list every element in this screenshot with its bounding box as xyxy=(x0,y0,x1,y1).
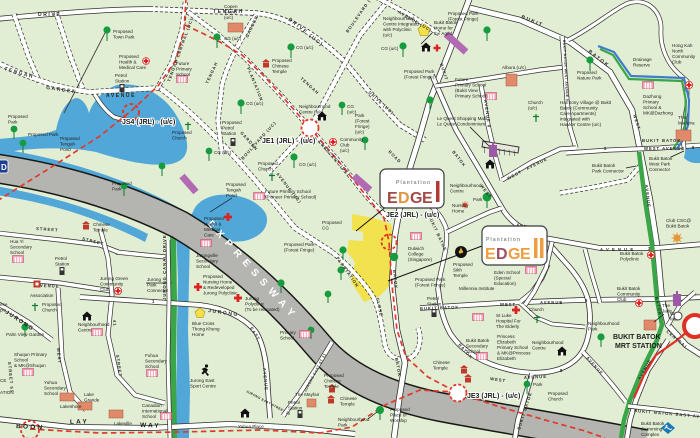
svg-text:Reserve: Reserve xyxy=(633,63,651,68)
svg-text:(u/c): (u/c) xyxy=(383,33,393,38)
svg-text:Centre: Centre xyxy=(532,346,546,351)
svg-text:Proposed: Proposed xyxy=(324,373,344,378)
svg-text:Yuhua Place: Yuhua Place xyxy=(238,424,264,429)
svg-text:D: D xyxy=(496,246,508,263)
svg-text:Church: Church xyxy=(528,100,543,105)
svg-text:Bukit Batok: Bukit Batok xyxy=(466,338,490,343)
svg-text:St Luke: St Luke xyxy=(496,313,512,318)
svg-text:School: School xyxy=(176,72,190,77)
svg-text:Proposed: Proposed xyxy=(8,114,28,119)
svg-text:Church: Church xyxy=(172,136,187,141)
svg-text:AVENUE: AVENUE xyxy=(106,93,136,99)
svg-text:Education): Education) xyxy=(494,281,516,286)
svg-text:5: 5 xyxy=(692,145,695,150)
svg-text:Secondary: Secondary xyxy=(10,245,33,250)
svg-text:Bukit Batok: Bukit Batok xyxy=(434,20,458,25)
svg-text:Town Park: Town Park xyxy=(113,35,135,40)
svg-text:Swimming: Swimming xyxy=(641,427,663,432)
svg-text:School: School xyxy=(280,336,294,341)
svg-text:Temple: Temple xyxy=(272,69,287,74)
svg-text:E: E xyxy=(387,190,398,207)
svg-text:Temple: Temple xyxy=(433,366,448,371)
svg-text:E: E xyxy=(485,246,496,263)
svg-text:Elizabeth: Elizabeth xyxy=(497,356,516,361)
svg-text:(Forest Fringe): (Forest Fringe) xyxy=(404,75,435,80)
svg-text:Station: Station xyxy=(427,302,442,307)
svg-text:CG (u/c): CG (u/c) xyxy=(214,150,232,155)
svg-text:Home for: Home for xyxy=(434,26,453,31)
svg-text:Lakeville: Lakeville xyxy=(114,421,132,426)
svg-text:Grand: Grand xyxy=(224,10,237,15)
svg-text:Church: Church xyxy=(548,397,563,402)
svg-text:Temple: Temple xyxy=(340,402,355,407)
svg-text:AVENUE: AVENUE xyxy=(540,300,563,305)
svg-text:(u/c): (u/c) xyxy=(355,130,365,135)
svg-text:Nature Park: Nature Park xyxy=(577,76,602,81)
svg-text:ese: ese xyxy=(0,302,8,307)
svg-text:Club CSC@: Club CSC@ xyxy=(666,218,691,223)
svg-text:Club: Club xyxy=(617,297,627,302)
svg-text:Park: Park xyxy=(473,197,483,202)
svg-text:Temple: Temple xyxy=(324,384,339,389)
svg-text:Secondary: Secondary xyxy=(196,259,219,264)
svg-text:JS4 (JRL) - (u/c): JS4 (JRL) - (u/c) xyxy=(122,119,175,126)
svg-text:CG (u/c): CG (u/c) xyxy=(224,36,242,41)
svg-text:Blue Cross: Blue Cross xyxy=(192,321,215,326)
svg-text:Park: Park xyxy=(533,382,543,387)
svg-text:MRT STATION: MRT STATION xyxy=(615,343,662,350)
svg-text:Eden School: Eden School xyxy=(494,270,520,275)
svg-text:Temple: Temple xyxy=(93,228,108,233)
svg-text:(Forest Fringe): (Forest Fringe) xyxy=(415,283,446,288)
svg-text:Batok (Community: Batok (Community xyxy=(560,106,598,111)
svg-text:The: The xyxy=(678,115,686,120)
svg-text:Lakeshore: Lakeshore xyxy=(60,404,82,409)
svg-text:DRIVE: DRIVE xyxy=(38,12,61,18)
svg-text:Harmony Village @ Bukit: Harmony Village @ Bukit xyxy=(560,100,612,105)
svg-text:Hawker Centre (u/c): Hawker Centre (u/c) xyxy=(560,122,602,127)
svg-text:Home: Home xyxy=(192,332,205,337)
svg-text:School: School xyxy=(10,250,24,255)
svg-text:Sport Centre: Sport Centre xyxy=(190,384,216,389)
svg-text:Proposed: Proposed xyxy=(42,302,62,307)
svg-text:Proposed Park: Proposed Park xyxy=(284,242,315,247)
svg-text:CG (u/c): CG (u/c) xyxy=(296,45,314,50)
svg-text:(Forest: (Forest xyxy=(355,119,370,124)
svg-text:CG: CG xyxy=(347,104,354,109)
svg-text:Future: Future xyxy=(176,61,190,66)
svg-text:Temple: Temple xyxy=(453,273,468,278)
svg-text:Secondary: Secondary xyxy=(466,344,489,349)
svg-text:CG: CG xyxy=(322,226,329,231)
svg-text:G: G xyxy=(508,246,520,263)
svg-text:Madeira: Madeira xyxy=(678,121,695,126)
svg-text:Connector: Connector xyxy=(147,288,169,293)
svg-text:School: School xyxy=(145,364,159,369)
svg-text:D: D xyxy=(398,190,410,207)
svg-text:CG (u/c): CG (u/c) xyxy=(299,162,317,167)
svg-text:E: E xyxy=(520,246,531,263)
svg-text:Jurongville: Jurongville xyxy=(196,253,218,258)
svg-text:Canadian: Canadian xyxy=(142,403,162,408)
svg-text:Jurong East: Jurong East xyxy=(190,378,215,383)
svg-text:Community: Community xyxy=(617,292,641,297)
svg-text:Medical Care: Medical Care xyxy=(119,65,147,70)
svg-text:Club: Club xyxy=(340,143,350,148)
svg-text:Proposed: Proposed xyxy=(204,216,224,221)
svg-text:CG (u/c): CG (u/c) xyxy=(246,101,264,106)
svg-text:Grande: Grande xyxy=(84,398,100,403)
svg-text:8: 8 xyxy=(560,368,563,373)
svg-text:JE1 (JRL) - (u/c): JE1 (JRL) - (u/c) xyxy=(262,138,315,145)
svg-text:Primary School): Primary School) xyxy=(455,94,488,99)
svg-text:The Elderly: The Elderly xyxy=(496,324,520,329)
svg-text:Proposed Park: Proposed Park xyxy=(404,69,435,74)
svg-text:Station: Station xyxy=(288,406,303,411)
svg-text:Neighbourhood: Neighbourhood xyxy=(299,104,331,109)
svg-text:Care: Care xyxy=(204,233,214,238)
svg-text:Hua Yi: Hua Yi xyxy=(10,239,24,244)
svg-text:Bukit Batok: Bukit Batok xyxy=(620,251,644,256)
svg-text:(u/c): (u/c) xyxy=(224,15,234,20)
svg-text:Nursing: Nursing xyxy=(452,203,468,208)
svg-text:School: School xyxy=(14,358,28,363)
svg-text:Proposed: Proposed xyxy=(226,182,246,187)
svg-text:Thong Kheng: Thong Kheng xyxy=(192,327,220,332)
svg-text:CG (u/c): CG (u/c) xyxy=(381,46,399,51)
svg-text:& MK@Princess: & MK@Princess xyxy=(497,351,531,356)
svg-text:Primary School: Primary School xyxy=(497,345,528,350)
svg-text:Future: Future xyxy=(455,77,469,82)
svg-text:Princess: Princess xyxy=(497,334,515,339)
svg-text:Proposed: Proposed xyxy=(112,181,132,186)
svg-text:Proposed Park: Proposed Park xyxy=(448,11,479,16)
svg-text:Primary: Primary xyxy=(176,67,193,72)
svg-text:Station: Station xyxy=(55,262,70,267)
svg-text:Neighbourhood: Neighbourhood xyxy=(588,321,620,326)
svg-text:Proposed: Proposed xyxy=(222,120,242,125)
svg-text:E: E xyxy=(422,190,433,207)
svg-text:Care Apartments): Care Apartments) xyxy=(560,111,596,116)
svg-text:Millennia Institute: Millennia Institute xyxy=(459,286,495,291)
svg-text:3: 3 xyxy=(648,246,651,251)
svg-text:Copen: Copen xyxy=(224,4,238,9)
svg-text:Primary: Primary xyxy=(643,100,660,105)
svg-text:School: School xyxy=(44,391,58,396)
svg-text:Petrol: Petrol xyxy=(427,296,439,301)
svg-text:Yuhua: Yuhua xyxy=(44,380,57,385)
svg-text:Le Quest Condominium: Le Quest Condominium xyxy=(437,122,485,127)
svg-text:(Forest Fringe): (Forest Fringe) xyxy=(284,248,315,253)
svg-text:Proposed: Proposed xyxy=(172,130,192,135)
svg-text:Club: Club xyxy=(672,60,682,65)
svg-text:Health &: Health & xyxy=(204,222,222,227)
svg-text:Tengah: Tengah xyxy=(60,142,76,147)
svg-text:Park: Park xyxy=(588,327,598,332)
svg-text:Medical: Medical xyxy=(204,227,220,232)
svg-text:(u/c): (u/c) xyxy=(528,106,538,111)
svg-text:Nursing Home: Nursing Home xyxy=(203,280,233,285)
svg-text:Polyclinic: Polyclinic xyxy=(620,257,640,262)
svg-text:International: International xyxy=(142,409,167,414)
svg-text:Proposed: Proposed xyxy=(577,70,597,75)
svg-text:Proposed: Proposed xyxy=(453,262,473,267)
svg-text:Bukit Batok: Bukit Batok xyxy=(592,163,616,168)
svg-text:Chinese: Chinese xyxy=(93,222,110,227)
svg-text:Neighbourhood: Neighbourhood xyxy=(532,340,564,345)
svg-text:Park Connector: Park Connector xyxy=(592,169,624,174)
svg-text:Jurong Polyclinic: Jurong Polyclinic xyxy=(203,291,238,296)
svg-text:Petrol: Petrol xyxy=(55,256,67,261)
svg-text:Tengah: Tengah xyxy=(226,188,242,193)
svg-text:BOON: BOON xyxy=(16,423,45,431)
svg-text:Hospital For: Hospital For xyxy=(496,319,521,324)
svg-text:CE: CE xyxy=(0,378,6,383)
svg-text:Proposed: Proposed xyxy=(390,407,410,412)
svg-text:(Special: (Special xyxy=(494,276,511,281)
svg-text:Secondary: Secondary xyxy=(145,359,168,364)
svg-text:Jurong: Jurong xyxy=(245,296,259,301)
svg-text:Proposed: Proposed xyxy=(322,220,342,225)
svg-text:Park: Park xyxy=(338,423,348,428)
svg-text:Fuhua: Fuhua xyxy=(145,353,158,358)
svg-text:6: 6 xyxy=(585,298,588,303)
svg-text:WAY: WAY xyxy=(140,422,161,430)
svg-text:Jurong: Jurong xyxy=(147,277,161,282)
svg-text:Primary School: Primary School xyxy=(455,83,486,88)
svg-text:Petrol: Petrol xyxy=(115,73,127,78)
svg-text:& MK@Shuqun: & MK@Shuqun xyxy=(14,363,46,368)
svg-text:JE2 (JRL) - (u/c): JE2 (JRL) - (u/c) xyxy=(386,212,439,219)
svg-text:JE3 (JRL) - (u/c): JE3 (JRL) - (u/c) xyxy=(467,393,520,400)
svg-text:Church: Church xyxy=(258,167,273,172)
svg-text:Park: Park xyxy=(147,283,157,288)
svg-text:Petrol: Petrol xyxy=(288,400,300,405)
svg-text:G: G xyxy=(410,190,422,207)
svg-text:Secondary: Secondary xyxy=(44,386,67,391)
svg-text:Park: Park xyxy=(355,113,365,118)
svg-text:Centre Integrated: Centre Integrated xyxy=(383,22,419,27)
svg-text:Fringe): Fringe) xyxy=(355,124,370,129)
svg-text:Proposed: Proposed xyxy=(548,391,568,396)
svg-text:Petrol: Petrol xyxy=(222,126,234,131)
svg-text:Chinese: Chinese xyxy=(324,379,341,384)
svg-text:MK@Dazhong: MK@Dazhong xyxy=(643,111,673,116)
svg-text:Jurong Green: Jurong Green xyxy=(100,276,129,281)
svg-text:Community: Community xyxy=(340,137,364,142)
svg-text:5: 5 xyxy=(604,146,607,151)
svg-text:Bukit Batok: Bukit Batok xyxy=(649,156,673,161)
svg-text:Palm View Garden: Palm View Garden xyxy=(6,332,45,337)
svg-text:Bukit Batok: Bukit Batok xyxy=(666,224,690,229)
svg-text:Sikh: Sikh xyxy=(453,268,462,273)
svg-text:Association: Association xyxy=(30,293,54,298)
svg-text:with Polyclinic: with Polyclinic xyxy=(383,27,412,32)
svg-text:Proposed Park: Proposed Park xyxy=(415,277,446,282)
svg-text:School: School xyxy=(466,349,480,354)
svg-text:Proposed: Proposed xyxy=(60,136,80,141)
svg-text:Chinese: Chinese xyxy=(433,360,450,365)
svg-text:Shuqun Primary: Shuqun Primary xyxy=(14,352,48,357)
svg-text:D: D xyxy=(1,163,7,172)
svg-text:Pond: Pond xyxy=(226,193,237,198)
svg-text:Dulwich: Dulwich xyxy=(408,246,425,251)
svg-text:Bukit Batok: Bukit Batok xyxy=(617,286,641,291)
svg-text:Neighbourhood: Neighbourhood xyxy=(383,16,415,21)
svg-text:Plantation: Plantation xyxy=(396,180,431,186)
svg-text:Future Primary School: Future Primary School xyxy=(265,189,311,194)
svg-text:& Redeveloped: & Redeveloped xyxy=(203,285,235,290)
svg-text:Bukit Batok: Bukit Batok xyxy=(641,421,665,426)
svg-text:Elizabeth: Elizabeth xyxy=(497,340,516,345)
svg-text:Community: Community xyxy=(672,54,696,59)
svg-text:Park: Park xyxy=(8,120,18,125)
svg-text:Station: Station xyxy=(222,131,237,136)
svg-text:West Park: West Park xyxy=(649,162,671,167)
svg-text:Chinese: Chinese xyxy=(272,64,289,69)
svg-text:LAY: LAY xyxy=(70,418,89,426)
svg-text:Hong Kah: Hong Kah xyxy=(672,43,693,48)
svg-text:(u/c): (u/c) xyxy=(340,148,350,153)
svg-text:Club: Club xyxy=(100,287,110,292)
svg-text:WEST: WEST xyxy=(500,302,516,307)
svg-text:Proposed Park: Proposed Park xyxy=(28,132,59,137)
svg-text:Polyclinic: Polyclinic xyxy=(245,302,265,307)
svg-text:BUKIT BATOK: BUKIT BATOK xyxy=(642,138,681,143)
svg-text:Place of: Place of xyxy=(390,413,407,418)
svg-text:The: The xyxy=(662,303,670,308)
svg-text:Centre (u/c): Centre (u/c) xyxy=(299,110,324,115)
svg-text:Station: Station xyxy=(115,79,130,84)
svg-text:Home: Home xyxy=(452,209,465,214)
svg-text:the Aged: the Aged xyxy=(434,31,453,36)
svg-text:(Pioneer Primary School): (Pioneer Primary School) xyxy=(265,195,317,200)
svg-text:Albura (u/c): Albura (u/c) xyxy=(502,65,526,70)
svg-text:WEST AVENUE: WEST AVENUE xyxy=(644,146,685,151)
svg-text:Connector: Connector xyxy=(649,167,671,172)
svg-text:Primary: Primary xyxy=(280,330,297,335)
svg-text:ple: ple xyxy=(0,308,7,313)
svg-text:The Mayfair: The Mayfair xyxy=(295,392,320,397)
svg-text:Proposed: Proposed xyxy=(203,274,223,279)
svg-text:BUKIT BATOK: BUKIT BATOK xyxy=(613,334,661,341)
svg-text:Community: Community xyxy=(100,282,124,287)
svg-text:Dazhong: Dazhong xyxy=(643,94,662,99)
svg-text:Church: Church xyxy=(529,307,544,312)
svg-text:Complex: Complex xyxy=(641,432,660,437)
svg-text:VENUE: VENUE xyxy=(40,283,60,289)
svg-text:Neighbourhood: Neighbourhood xyxy=(78,322,110,327)
svg-text:Centre: Centre xyxy=(78,328,92,333)
svg-text:Neighbourhood: Neighbourhood xyxy=(338,417,370,422)
svg-text:Le Quest Shopping Mall/: Le Quest Shopping Mall/ xyxy=(437,116,488,121)
svg-text:Pond: Pond xyxy=(60,147,71,152)
svg-text:1: 1 xyxy=(152,299,155,304)
svg-text:School: School xyxy=(196,264,210,269)
svg-text:North: North xyxy=(672,49,684,54)
svg-text:Proposed: Proposed xyxy=(272,58,292,63)
svg-text:College: College xyxy=(408,252,424,257)
svg-text:Worship: Worship xyxy=(390,418,407,423)
svg-text:(To be relocated): (To be relocated) xyxy=(245,307,280,312)
svg-text:ATION: ATION xyxy=(0,390,14,395)
svg-text:(Bukit View: (Bukit View xyxy=(455,88,479,93)
svg-text:Health &: Health & xyxy=(119,60,137,65)
svg-text:Neighbourhood: Neighbourhood xyxy=(450,183,482,188)
svg-text:integrated with: integrated with xyxy=(560,117,590,122)
svg-text:Plantation: Plantation xyxy=(486,237,521,243)
svg-text:Chinese: Chinese xyxy=(340,396,357,401)
svg-text:(Singapore): (Singapore) xyxy=(408,257,432,262)
svg-text:Proposed: Proposed xyxy=(113,29,133,34)
svg-text:Proposed: Proposed xyxy=(258,161,278,166)
svg-text:School: School xyxy=(142,414,156,419)
svg-text:School &: School & xyxy=(643,105,661,110)
svg-text:Park: Park xyxy=(112,187,122,192)
svg-text:Church: Church xyxy=(42,308,57,313)
svg-text:Drainage: Drainage xyxy=(633,57,652,62)
svg-text:41: 41 xyxy=(112,320,118,327)
svg-text:Lake: Lake xyxy=(84,392,94,397)
svg-text:Proposed: Proposed xyxy=(119,54,139,59)
svg-text:Centre: Centre xyxy=(450,189,464,194)
